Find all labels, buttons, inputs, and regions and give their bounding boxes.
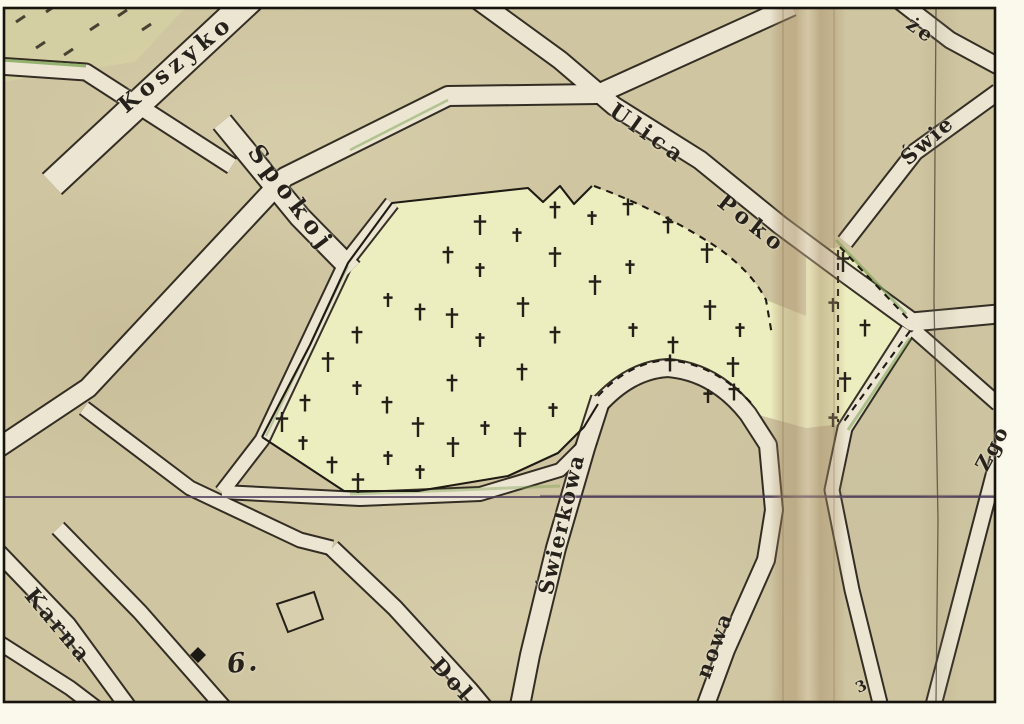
margin-left [0, 0, 3, 724]
map-screenshot: KoszykoSpokojUlicaPokożeŚwieŚwierkowaDol… [0, 0, 1024, 724]
margin-top [0, 0, 1024, 7]
margin-bottom [0, 703, 1024, 724]
fold-shade-minor [918, 7, 960, 703]
margin-right [996, 0, 1024, 724]
map-canvas [0, 0, 1024, 724]
